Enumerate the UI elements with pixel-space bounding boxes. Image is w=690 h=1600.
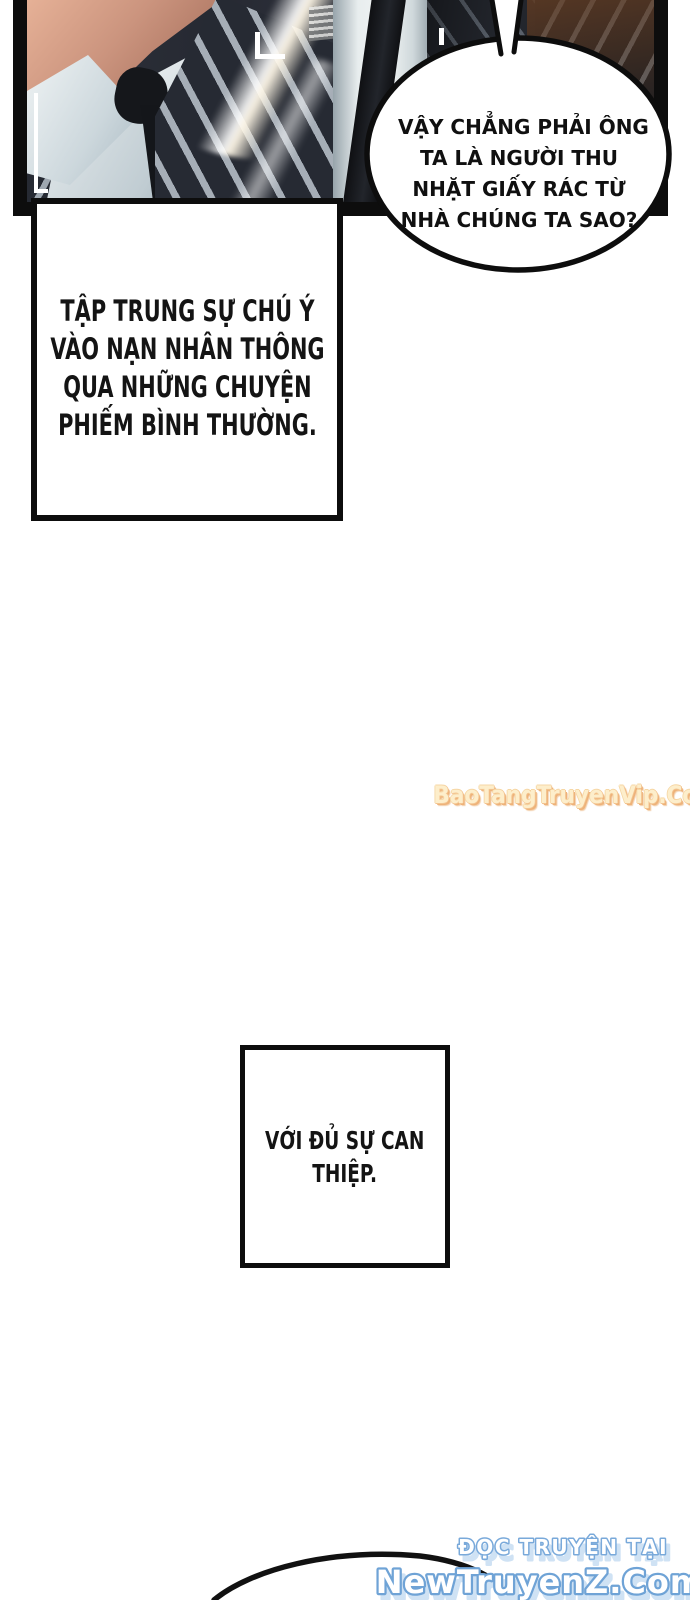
speech-line: VẬY CHẲNG PHẢI ÔNG <box>398 112 640 143</box>
speech-line: NHẶT GIẤY RÁC TỪ <box>398 174 640 205</box>
narration-line: VÀO NẠN NHÂN THÔNG <box>50 330 324 368</box>
speech-bubble-text: VẬY CHẲNG PHẢI ÔNG TA LÀ NGƯỜI THU NHẶT … <box>398 112 640 236</box>
narration-line: VỚI ĐỦ SỰ CAN <box>265 1124 424 1157</box>
narration-line: THIỆP. <box>265 1157 424 1190</box>
narration-box-1: TẬP TRUNG SỰ CHÚ Ý VÀO NẠN NHÂN THÔNG QU… <box>31 198 343 521</box>
narration-box-2-text: VỚI ĐỦ SỰ CAN THIỆP. <box>265 1124 424 1190</box>
footer-branding: ĐỌC TRUYỆN TẠI ĐỌC TRUYỆN TẠI NewTruyenZ… <box>0 1526 690 1600</box>
speech-line: TA LÀ NGƯỜI THU <box>398 143 640 174</box>
narration-line: QUA NHỮNG CHUYỆN <box>50 368 324 406</box>
narration-box-1-text: TẬP TRUNG SỰ CHÚ Ý VÀO NẠN NHÂN THÔNG QU… <box>50 292 324 444</box>
footer-site: NewTruyenZ.Com <box>376 1563 690 1600</box>
narration-line: TẬP TRUNG SỰ CHÚ Ý <box>50 292 324 330</box>
watermark-baotangtruyenvip: BaoTangTruyenVip.Com <box>433 781 674 809</box>
speech-line: NHÀ CHÚNG TA SAO? <box>398 205 640 236</box>
narration-line: PHIẾM BÌNH THƯỜNG. <box>50 406 324 444</box>
footer-tagline: ĐỌC TRUYỆN TẠI <box>458 1535 668 1559</box>
narration-box-2: VỚI ĐỦ SỰ CAN THIỆP. <box>240 1045 450 1268</box>
